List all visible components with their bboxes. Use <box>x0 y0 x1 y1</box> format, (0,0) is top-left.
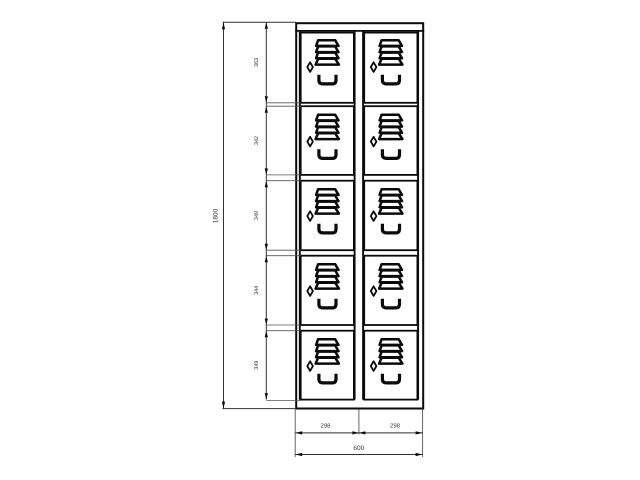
svg-text:298: 298 <box>320 423 331 430</box>
svg-text:349: 349 <box>254 211 260 220</box>
svg-text:600: 600 <box>353 445 364 452</box>
svg-text:344: 344 <box>254 286 260 295</box>
svg-text:342: 342 <box>254 136 260 145</box>
svg-text:349: 349 <box>254 361 260 370</box>
svg-text:363: 363 <box>254 58 260 67</box>
svg-text:1800: 1800 <box>213 208 220 223</box>
svg-text:298: 298 <box>390 423 401 430</box>
